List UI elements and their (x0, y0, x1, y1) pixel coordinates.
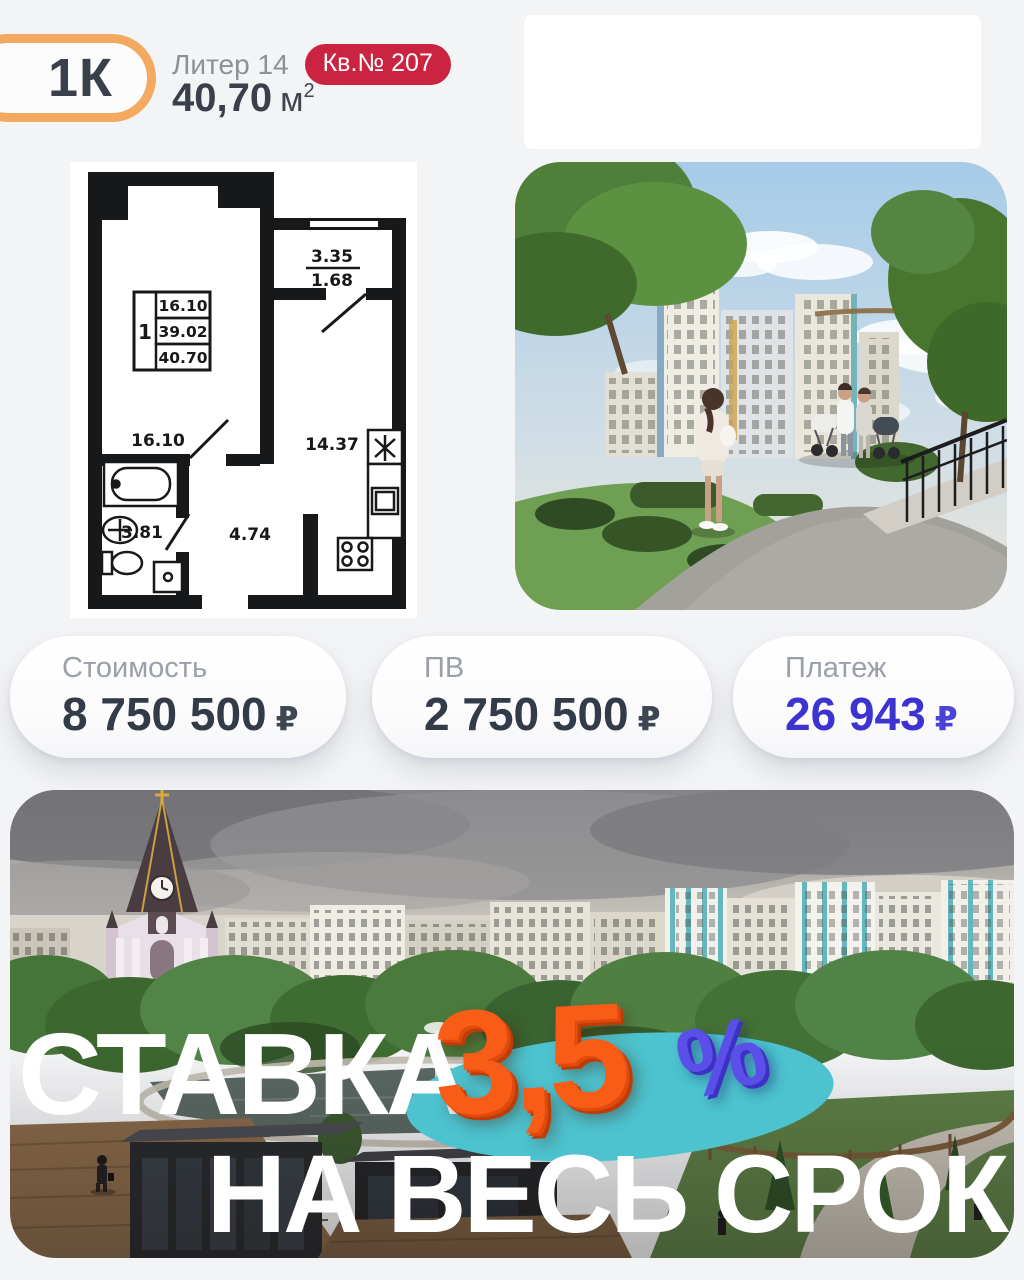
balcony-area-label: 1.68 (311, 271, 353, 291)
area-unit: м2 (280, 81, 315, 119)
floor-plan-card: 1 16.10 39.02 40.70 3.35 1.68 16.10 14.3… (70, 162, 417, 618)
svg-text:1: 1 (138, 320, 152, 344)
area-exponent: 2 (303, 80, 314, 102)
toilet-icon (102, 552, 112, 574)
svg-text:40.70: 40.70 (158, 349, 207, 367)
payment-label: Платеж (785, 652, 1014, 685)
floor-plan-svg: 1 16.10 39.02 40.70 3.35 1.68 16.10 14.3… (70, 162, 417, 618)
living-room-label: 16.10 (131, 431, 185, 451)
logo-placeholder (524, 15, 981, 149)
park-photo (515, 162, 1007, 610)
downpayment-value: 2 750 500₽ (424, 687, 712, 741)
payment-value: 26 943₽ (785, 687, 1014, 741)
apartment-number-badge: Кв.№ 207 (305, 44, 451, 85)
ruble-sign: ₽ (638, 699, 661, 738)
downpayment-card: ПВ 2 750 500₽ (372, 636, 712, 758)
downpayment-label: ПВ (424, 652, 712, 685)
svg-text:16.10: 16.10 (158, 297, 207, 315)
park-photo-svg (515, 162, 1007, 610)
payment-card: Платеж 26 943₽ (733, 636, 1014, 758)
ruble-sign: ₽ (935, 699, 958, 738)
area-row: 40,70м2 (172, 76, 315, 121)
kitchen-label: 14.37 (305, 435, 359, 455)
price-label: Стоимость (62, 652, 346, 685)
banner-headline-1: СТАВКА (18, 1016, 467, 1132)
price-card: Стоимость 8 750 500₽ (10, 636, 346, 758)
price-value: 8 750 500₽ (62, 687, 346, 741)
ruble-sign: ₽ (276, 699, 299, 738)
banner-headline-2: НА ВЕСЬ СРОК (207, 1140, 1006, 1250)
rate-value: 3,5 (430, 981, 628, 1139)
listing-page: 1К Литер 14 Кв.№ 207 40,70м2 (0, 0, 1024, 1280)
hallway-label: 4.74 (229, 525, 271, 545)
area-value: 40,70 (172, 76, 272, 120)
balcony-width-label: 3.35 (311, 247, 353, 267)
rooms-badge: 1К (0, 34, 156, 122)
plan-legend-table: 1 16.10 39.02 40.70 (134, 292, 210, 370)
promo-banner: СТАВКА 3,5 % НА ВЕСЬ СРОК (10, 790, 1014, 1258)
rooms-badge-label: 1К (48, 47, 113, 109)
svg-text:39.02: 39.02 (158, 323, 207, 341)
bathroom-label: 3.81 (121, 523, 163, 543)
